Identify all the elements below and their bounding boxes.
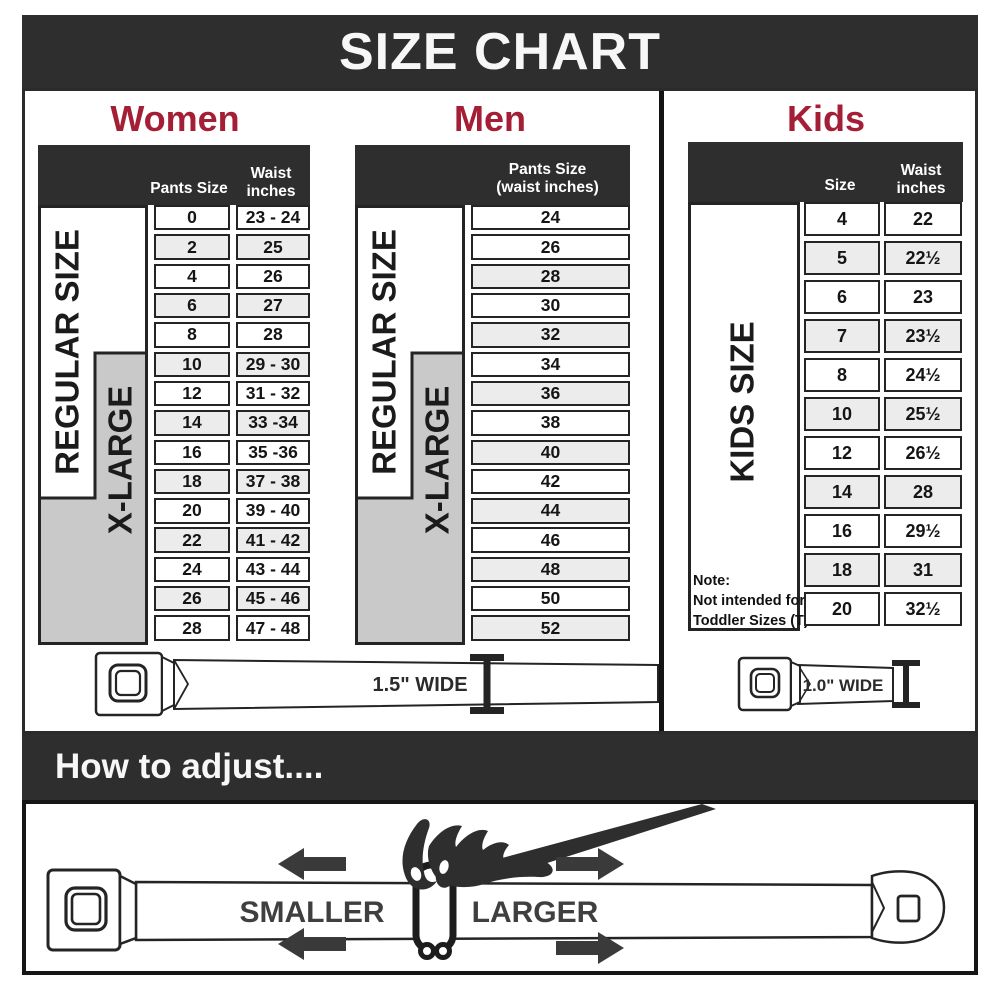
women-pants-size-cell: 16 [154,440,230,465]
kids-waist-cell: 28 [884,475,962,509]
women-pants-size-cell: 6 [154,293,230,318]
kids-belt-buckle-flange [791,662,800,706]
kids-width-marker-icon [892,660,920,708]
kids-waist-header: Waist inches [880,162,962,198]
kids-buckle-button-inner [756,674,774,692]
women-waist-cell: 25 [236,234,310,259]
women-waist-header-line1: Waist [232,165,310,183]
men-pants-size-cell: 40 [471,440,630,465]
men-pants-size-header: Pants Size (waist inches) [465,161,630,197]
men-pants-size-cell: 26 [471,234,630,259]
size-chart-banner: SIZE CHART [22,15,978,88]
adjust-illustration-panel: SMALLER LARGER [22,800,978,975]
men-regular-size-label: REGULAR SIZE [366,229,403,475]
kids-size-column: 45678101214161820 [804,202,880,631]
women-pants-size-cell: 26 [154,586,230,611]
women-pants-size-cell: 12 [154,381,230,406]
men-pants-size-cell: 36 [471,381,630,406]
kids-belt-illustration: 1.0" WIDE [730,652,955,720]
kids-note-line1: Note: [693,573,730,589]
men-pants-size-cell: 34 [471,352,630,377]
men-pants-size-cell: 42 [471,469,630,494]
women-waist-cell: 43 - 44 [236,557,310,582]
women-section-title: Women [55,98,295,138]
adjust-buckle-flange [120,876,136,944]
kids-waist-cell: 25½ [884,397,962,431]
adult-belt-width-label: 1.5" WIDE [372,674,467,696]
kids-size-header: Size [800,177,880,195]
women-table-header: Pants Size Waist inches [38,145,310,205]
men-pants-size-cell: 50 [471,586,630,611]
size-chart-infographic: SIZE CHART Women Men Kids Pants Size Wai… [0,0,1000,1000]
women-waist-header-line2: inches [232,183,310,201]
women-waist-cell: 35 -36 [236,440,310,465]
slider-loop-left [421,945,434,958]
men-pants-size-cell: 24 [471,205,630,230]
men-pants-size-cell: 52 [471,615,630,640]
women-waist-cell: 23 - 24 [236,205,310,230]
belt-buckle-button-inner [116,671,140,695]
kids-table-header: Size Waist inches [688,142,963,202]
women-waist-cell: 41 - 42 [236,527,310,552]
belt-buckle-flange [162,657,174,711]
men-pants-size-cell: 30 [471,293,630,318]
kids-waist-cell: 23 [884,280,962,314]
kids-belt-width-label: 1.0" WIDE [803,676,884,695]
kids-waist-cell: 22½ [884,241,962,275]
kids-waist-cell: 24½ [884,358,962,392]
men-pants-size-cell: 44 [471,498,630,523]
kids-size-cell: 6 [804,280,880,314]
kids-waist-column: 2222½2323½24½25½26½2829½3132½ [884,202,962,631]
kids-waist-cell: 23½ [884,319,962,353]
women-pants-size-cell: 4 [154,264,230,289]
men-pants-size-column: 242628303234363840424446485052 [471,205,630,645]
kids-note-line3: Toddler Sizes (T) [693,613,809,629]
kids-note-line2: Not intended for [693,593,805,609]
kids-waist-cell: 32½ [884,592,962,626]
adjust-belt-illustration: SMALLER LARGER [26,804,974,971]
kids-size-cell: 7 [804,319,880,353]
men-pants-size-cell: 46 [471,527,630,552]
women-regular-size-label: REGULAR SIZE [49,229,86,475]
women-size-group-bands: REGULAR SIZE X-LARGE [38,205,148,645]
women-pants-size-cell: 24 [154,557,230,582]
women-pants-size-cell: 8 [154,322,230,347]
men-pants-size-cell: 32 [471,322,630,347]
kids-size-cell: 8 [804,358,880,392]
kids-waist-cell: 31 [884,553,962,587]
size-tables-panel: Women Men Kids Pants Size Waist inches R… [22,88,978,734]
women-xlarge-label: X-LARGE [102,386,139,535]
adjust-buckle-button-inner [72,894,100,924]
women-pants-size-cell: 28 [154,615,230,640]
men-pants-size-cell: 28 [471,264,630,289]
men-xlarge-label: X-LARGE [419,386,456,535]
men-pants-size-cell: 38 [471,410,630,435]
women-pants-size-cell: 14 [154,410,230,435]
men-table-header: Pants Size (waist inches) [355,145,630,205]
men-header-line1: Pants Size [465,161,630,179]
women-waist-cell: 27 [236,293,310,318]
kids-size-cell: 18 [804,553,880,587]
smaller-arrow-top-icon [278,848,346,880]
adult-belt-illustration: 1.5" WIDE [90,647,660,725]
kids-size-group-band: KIDS SIZE Note: Not intended for Toddler… [688,202,800,631]
women-waist-cell: 33 -34 [236,410,310,435]
women-pants-size-header: Pants Size [148,180,230,198]
women-waist-cell: 29 - 30 [236,352,310,377]
kids-size-cell: 10 [804,397,880,431]
women-pants-size-cell: 2 [154,234,230,259]
women-waist-header: Waist inches [232,165,310,201]
kids-size-cell: 16 [804,514,880,548]
men-section-title: Men [370,98,610,138]
women-pants-size-cell: 18 [154,469,230,494]
men-pants-size-cell: 48 [471,557,630,582]
kids-size-cell: 14 [804,475,880,509]
kids-waist-cell: 26½ [884,436,962,470]
smaller-label: SMALLER [240,896,385,929]
women-waist-cell: 39 - 40 [236,498,310,523]
kids-size-label: KIDS SIZE [724,321,761,482]
women-waist-column: 23 - 242526272829 - 3031 - 3233 -3435 -3… [236,205,310,645]
kids-waist-header-line1: Waist [880,162,962,180]
women-pants-size-cell: 0 [154,205,230,230]
kids-size-cell: 5 [804,241,880,275]
men-size-group-bands: REGULAR SIZE X-LARGE [355,205,465,645]
kids-section-divider [659,91,664,731]
kids-section-title: Kids [676,98,976,138]
women-waist-cell: 28 [236,322,310,347]
how-to-adjust-banner: How to adjust.... [22,734,978,800]
slider-loop-right [437,945,450,958]
women-pants-size-cell: 10 [154,352,230,377]
kids-waist-cell: 22 [884,202,962,236]
women-waist-cell: 45 - 46 [236,586,310,611]
women-pants-size-column: 0246810121416182022242628 [154,205,230,645]
women-pants-size-cell: 22 [154,527,230,552]
kids-size-cell: 20 [804,592,880,626]
kids-size-cell: 4 [804,202,880,236]
women-waist-cell: 31 - 32 [236,381,310,406]
how-to-adjust-title: How to adjust.... [55,747,323,787]
men-header-line2: (waist inches) [465,179,630,197]
women-waist-cell: 47 - 48 [236,615,310,640]
kids-waist-header-line2: inches [880,180,962,198]
kids-size-cell: 12 [804,436,880,470]
kids-waist-cell: 29½ [884,514,962,548]
larger-label: LARGER [472,896,599,929]
size-chart-title: SIZE CHART [339,22,661,82]
women-pants-size-cell: 20 [154,498,230,523]
women-waist-cell: 37 - 38 [236,469,310,494]
women-waist-cell: 26 [236,264,310,289]
adjust-belt-tip-slot [898,896,919,921]
